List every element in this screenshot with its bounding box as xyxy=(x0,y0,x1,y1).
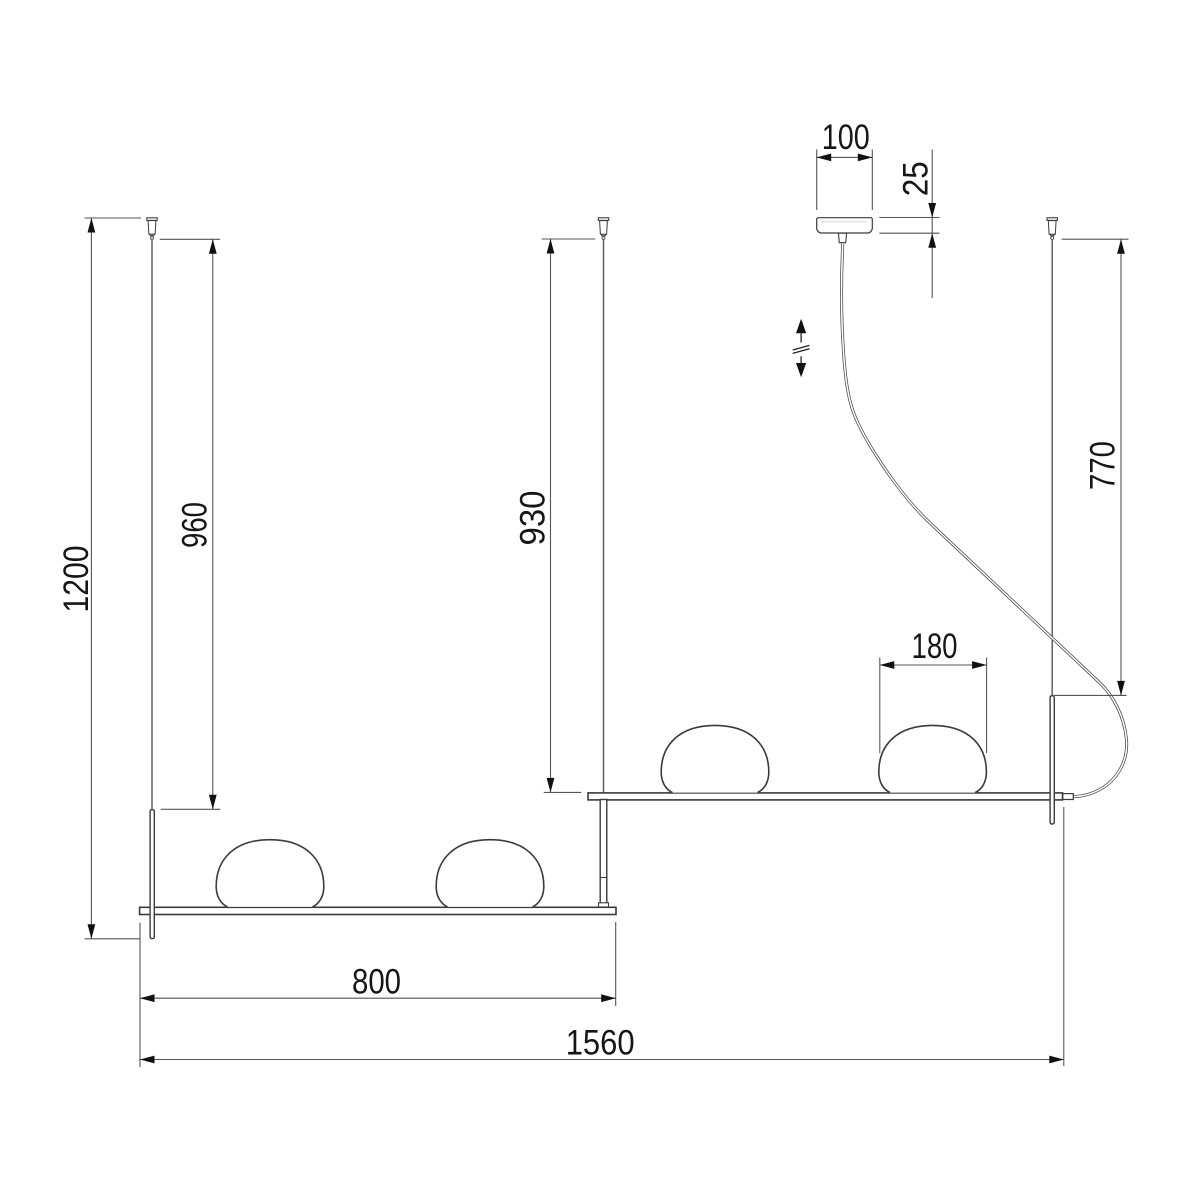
svg-text:930: 930 xyxy=(514,491,553,546)
svg-text:1200: 1200 xyxy=(57,546,96,613)
svg-text:100: 100 xyxy=(822,118,870,157)
svg-text:1560: 1560 xyxy=(566,1024,635,1063)
svg-text:180: 180 xyxy=(912,627,958,666)
svg-text:800: 800 xyxy=(352,963,401,1002)
svg-text:960: 960 xyxy=(176,502,215,548)
svg-text:25: 25 xyxy=(897,161,936,196)
svg-text:770: 770 xyxy=(1084,441,1123,490)
